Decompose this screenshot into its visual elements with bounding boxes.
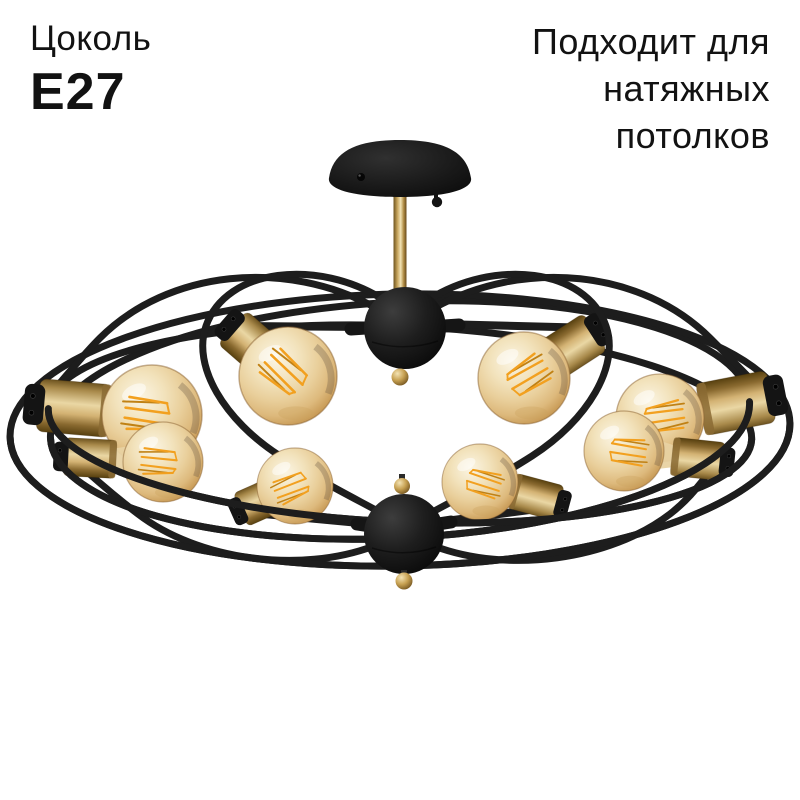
stem-rod: [394, 186, 407, 298]
lower-hub: [364, 474, 444, 590]
upper-hub-finial: [392, 369, 409, 386]
canopy-knob: [432, 197, 442, 207]
bulb: [478, 332, 570, 424]
lower-hub-finial: [396, 573, 413, 590]
product-image: [0, 0, 800, 800]
product-card: Цоколь E27 Подходит для натяжных потолко…: [0, 0, 800, 800]
lower-hub-top-ball: [394, 478, 410, 494]
canopy-screw: [357, 173, 365, 181]
bulb: [584, 411, 664, 491]
bulb: [442, 444, 518, 520]
upper-hub: [364, 287, 446, 386]
bulb: [239, 327, 337, 425]
